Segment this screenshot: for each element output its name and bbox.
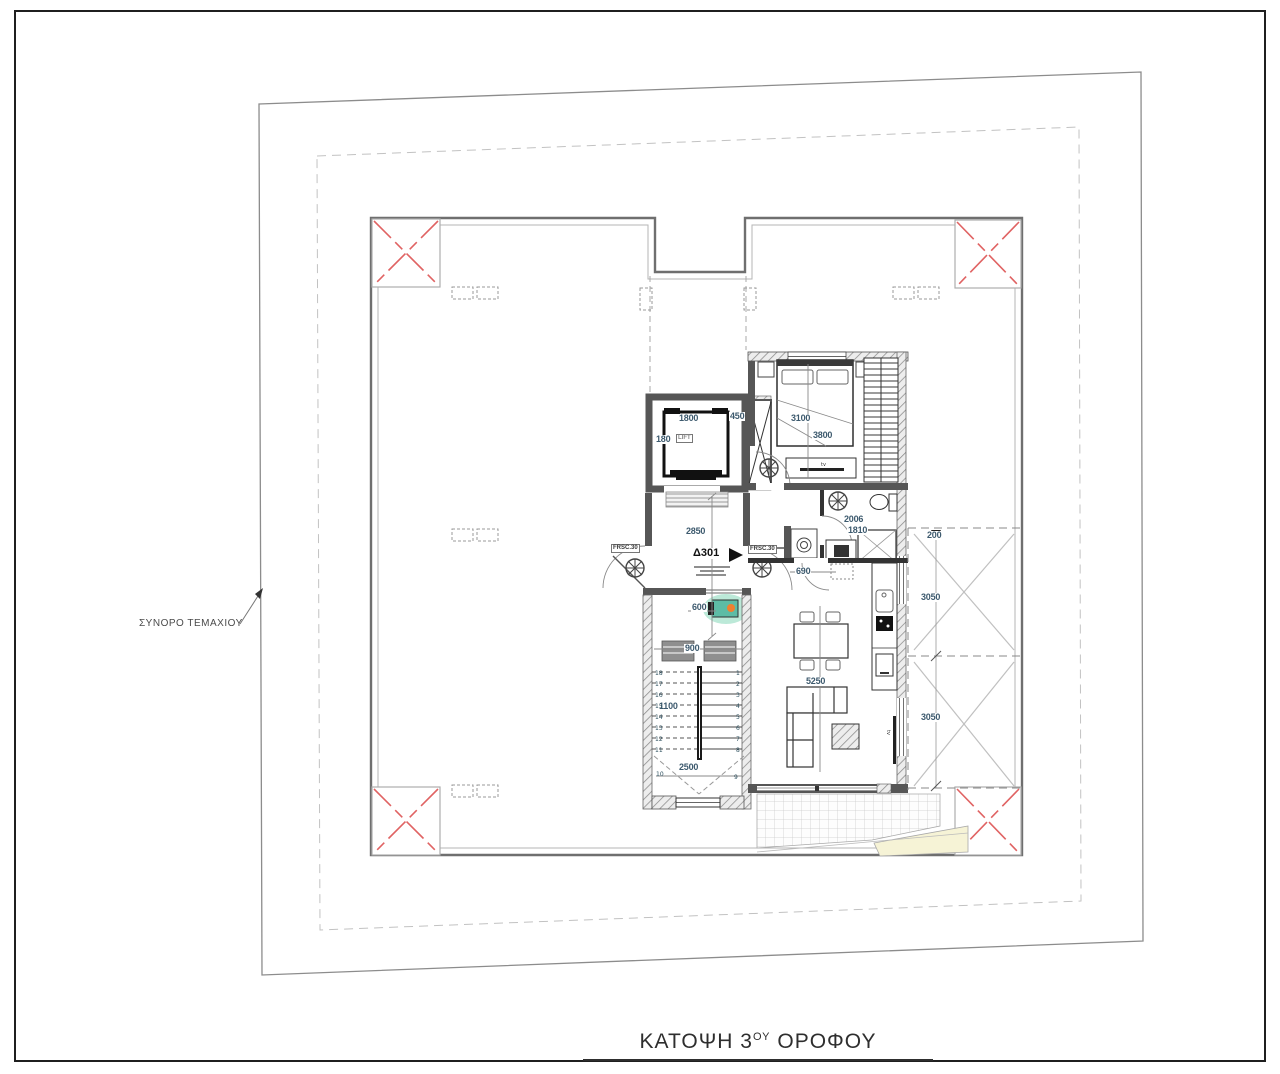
fire-door-label-left: FRSC.30	[611, 544, 640, 553]
step-number: 3	[736, 693, 740, 699]
highlight-dot-icon	[727, 604, 735, 612]
step-number: 12	[655, 737, 663, 743]
corner-marker-bottom-left	[372, 787, 440, 855]
floor-grille	[666, 492, 728, 507]
step-number: 1	[736, 671, 740, 677]
dim-lift-width: 1800	[678, 414, 699, 423]
step-number: 18	[655, 671, 663, 677]
pillow	[817, 370, 848, 384]
sheet-title-suffix: ΟΡΟΦΟΥ	[771, 1030, 877, 1053]
landing-mat	[704, 641, 736, 661]
dim-veranda-lower: 3050	[920, 713, 941, 722]
dim-living-depth: 5250	[805, 677, 826, 686]
lift-label: LIFT	[676, 434, 693, 443]
unit-number: Δ301	[693, 548, 719, 559]
step-number: 8	[736, 748, 740, 754]
step-number: 5	[736, 715, 740, 721]
dim-stair-length: 2500	[678, 763, 699, 772]
step-number: 16	[655, 693, 663, 699]
step-number: 10	[656, 772, 664, 778]
leader-arrow-icon	[255, 588, 263, 599]
step-number: 9	[734, 775, 738, 781]
sheet-title-text: ΚΑΤΟΨΗ 3	[640, 1030, 753, 1053]
fan-icon	[760, 459, 778, 477]
step-number: 15	[655, 704, 663, 710]
step-number: 14	[655, 715, 663, 721]
cooktop	[876, 616, 893, 631]
wall-tv	[893, 716, 896, 764]
corner-marker-top-right	[955, 220, 1021, 288]
dining-table	[794, 624, 848, 658]
dim-duct: 450	[729, 412, 745, 421]
roof-slab-outline	[371, 218, 1022, 855]
sheet-title: ΚΑΤΟΨΗ 3ΟΥ ΟΡΟΦΟΥ	[583, 1030, 933, 1061]
dim-bedroom-depth: 3800	[812, 431, 833, 440]
washing-machine	[791, 529, 817, 558]
dim-bath-width: 2006	[843, 515, 864, 524]
dim-veranda-offset: 200	[926, 531, 942, 540]
living-tv-label: tv	[885, 730, 890, 735]
dim-hall-door: 690	[795, 567, 811, 576]
step-number: 11	[655, 748, 663, 754]
fan-icon	[626, 559, 644, 577]
bedroom-tv-label: tv	[821, 463, 826, 468]
toilet	[870, 494, 897, 511]
nightstand	[758, 362, 774, 377]
step-number: 4	[736, 704, 740, 710]
dim-stair-width: 900	[684, 644, 700, 653]
plan-drawing	[0, 0, 1280, 1074]
dim-lobby-depth: 2850	[685, 527, 706, 536]
floor-plan: ΣΥΝΟΡΟ ΤΕΜΑΧΙΟΥ 1800 180 LIFT 450 2850 Δ…	[0, 0, 1280, 1074]
dim-bedroom-width: 3100	[790, 414, 811, 423]
fan-icon	[829, 492, 847, 510]
dim-veranda-upper: 3050	[920, 593, 941, 602]
sheet-title-superscript: ΟΥ	[753, 1031, 771, 1043]
fire-door-label-right: FRSC.30	[748, 545, 777, 554]
dim-bath-depth: 1810	[847, 526, 868, 535]
chair	[800, 612, 814, 622]
step-number: 7	[736, 737, 740, 743]
step-number: 17	[655, 682, 663, 688]
dim-landing-window: 600	[691, 603, 707, 612]
chair	[826, 612, 840, 622]
corner-marker-top-left	[372, 219, 440, 287]
step-number: 13	[655, 726, 663, 732]
chair	[800, 660, 814, 670]
step-number: 2	[736, 682, 740, 688]
coffee-table	[832, 724, 859, 749]
step-number: 6	[736, 726, 740, 732]
dim-lift-cab: 180	[655, 435, 671, 444]
chair	[826, 660, 840, 670]
plot-boundary-label: ΣΥΝΟΡΟ ΤΕΜΑΧΙΟΥ	[139, 618, 243, 629]
